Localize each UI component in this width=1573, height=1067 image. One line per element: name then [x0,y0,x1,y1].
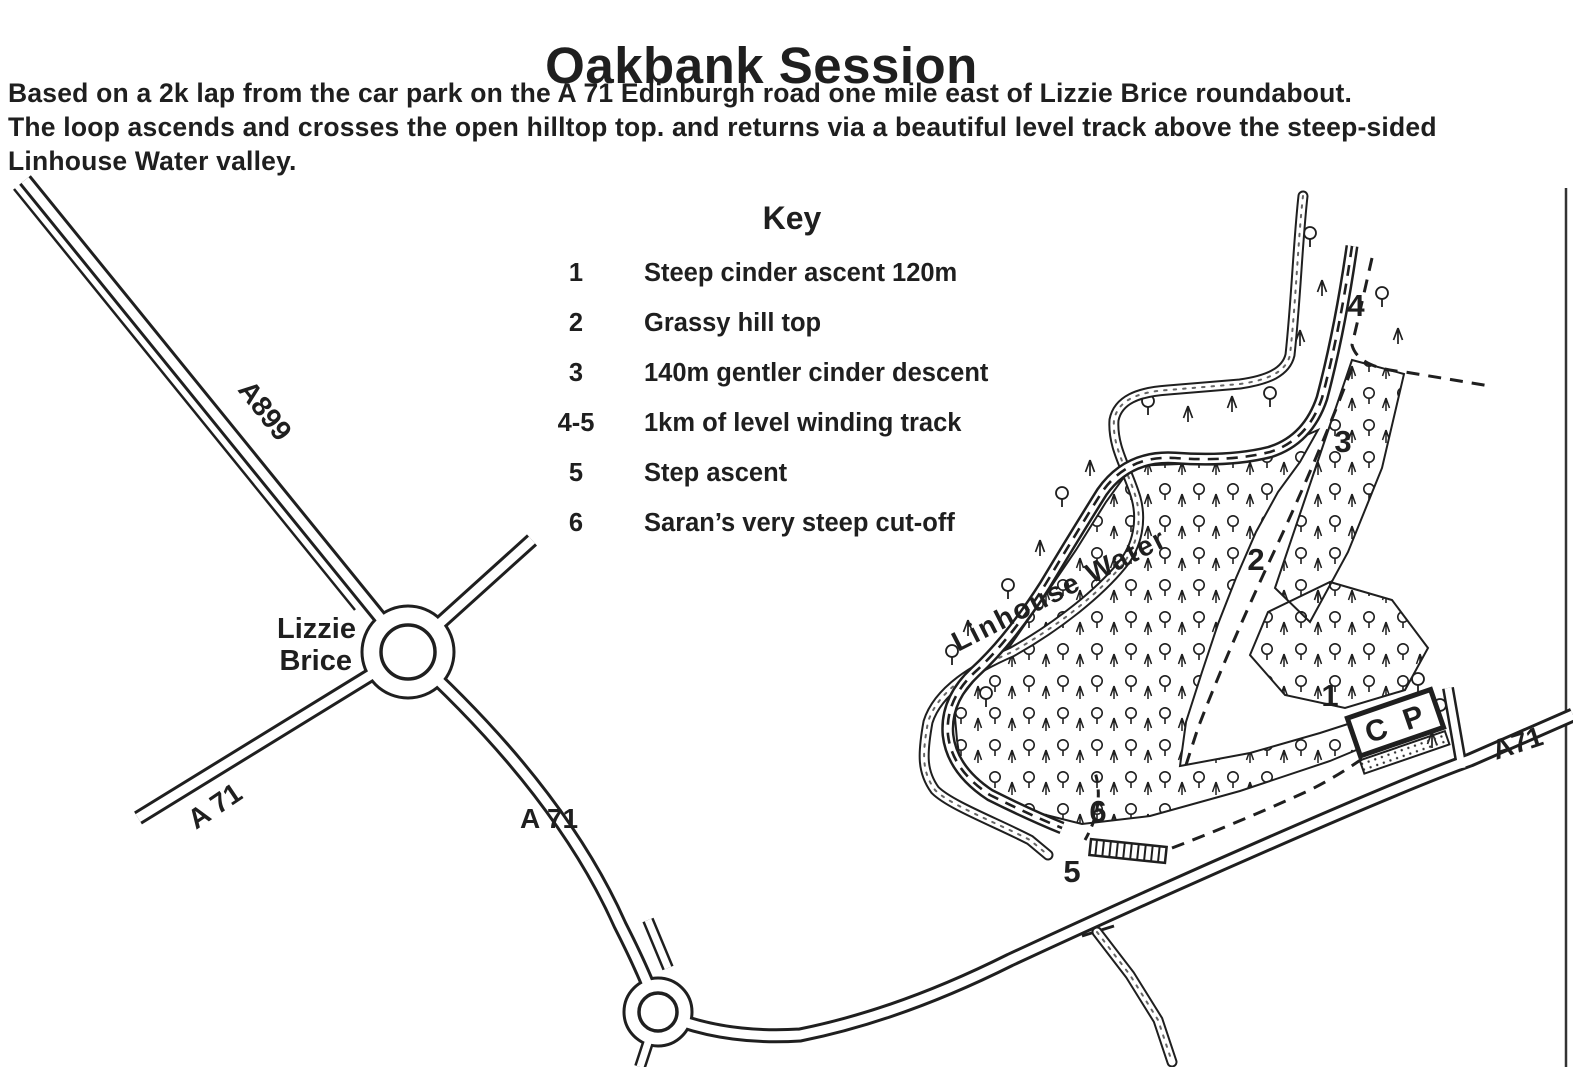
road-label-a71-middle: A 71 [520,803,578,834]
route-dashed-top [1352,258,1490,386]
place-label-lizzie-line2: Brice [279,645,352,677]
road-label-a899: A899 [232,375,298,447]
road-label-a71-east: A71 [1488,720,1546,765]
scanned-route-sheet: { "page": { "title": "Oakbank Session", … [0,0,1573,1067]
second-roundabout-island [639,993,677,1031]
route-sketch-map: C P A899 Lizzie Brice A 71 A 71 A71 Linh… [0,0,1573,1067]
steps-icon [1089,839,1166,863]
route-marker-2: 2 [1247,542,1264,577]
road-a899-extra-line [14,189,355,610]
route-marker-3: 3 [1334,424,1351,459]
route-marker-1: 1 [1321,678,1338,713]
route-marker-4: 4 [1347,288,1365,323]
woodland-blob-1 [1250,582,1428,708]
place-label-lizzie-line1: Lizzie [277,613,356,645]
lizzie-brice-roundabout-island [381,625,435,679]
route-marker-6: 6 [1089,794,1106,829]
route-marker-5: 5 [1063,854,1080,889]
